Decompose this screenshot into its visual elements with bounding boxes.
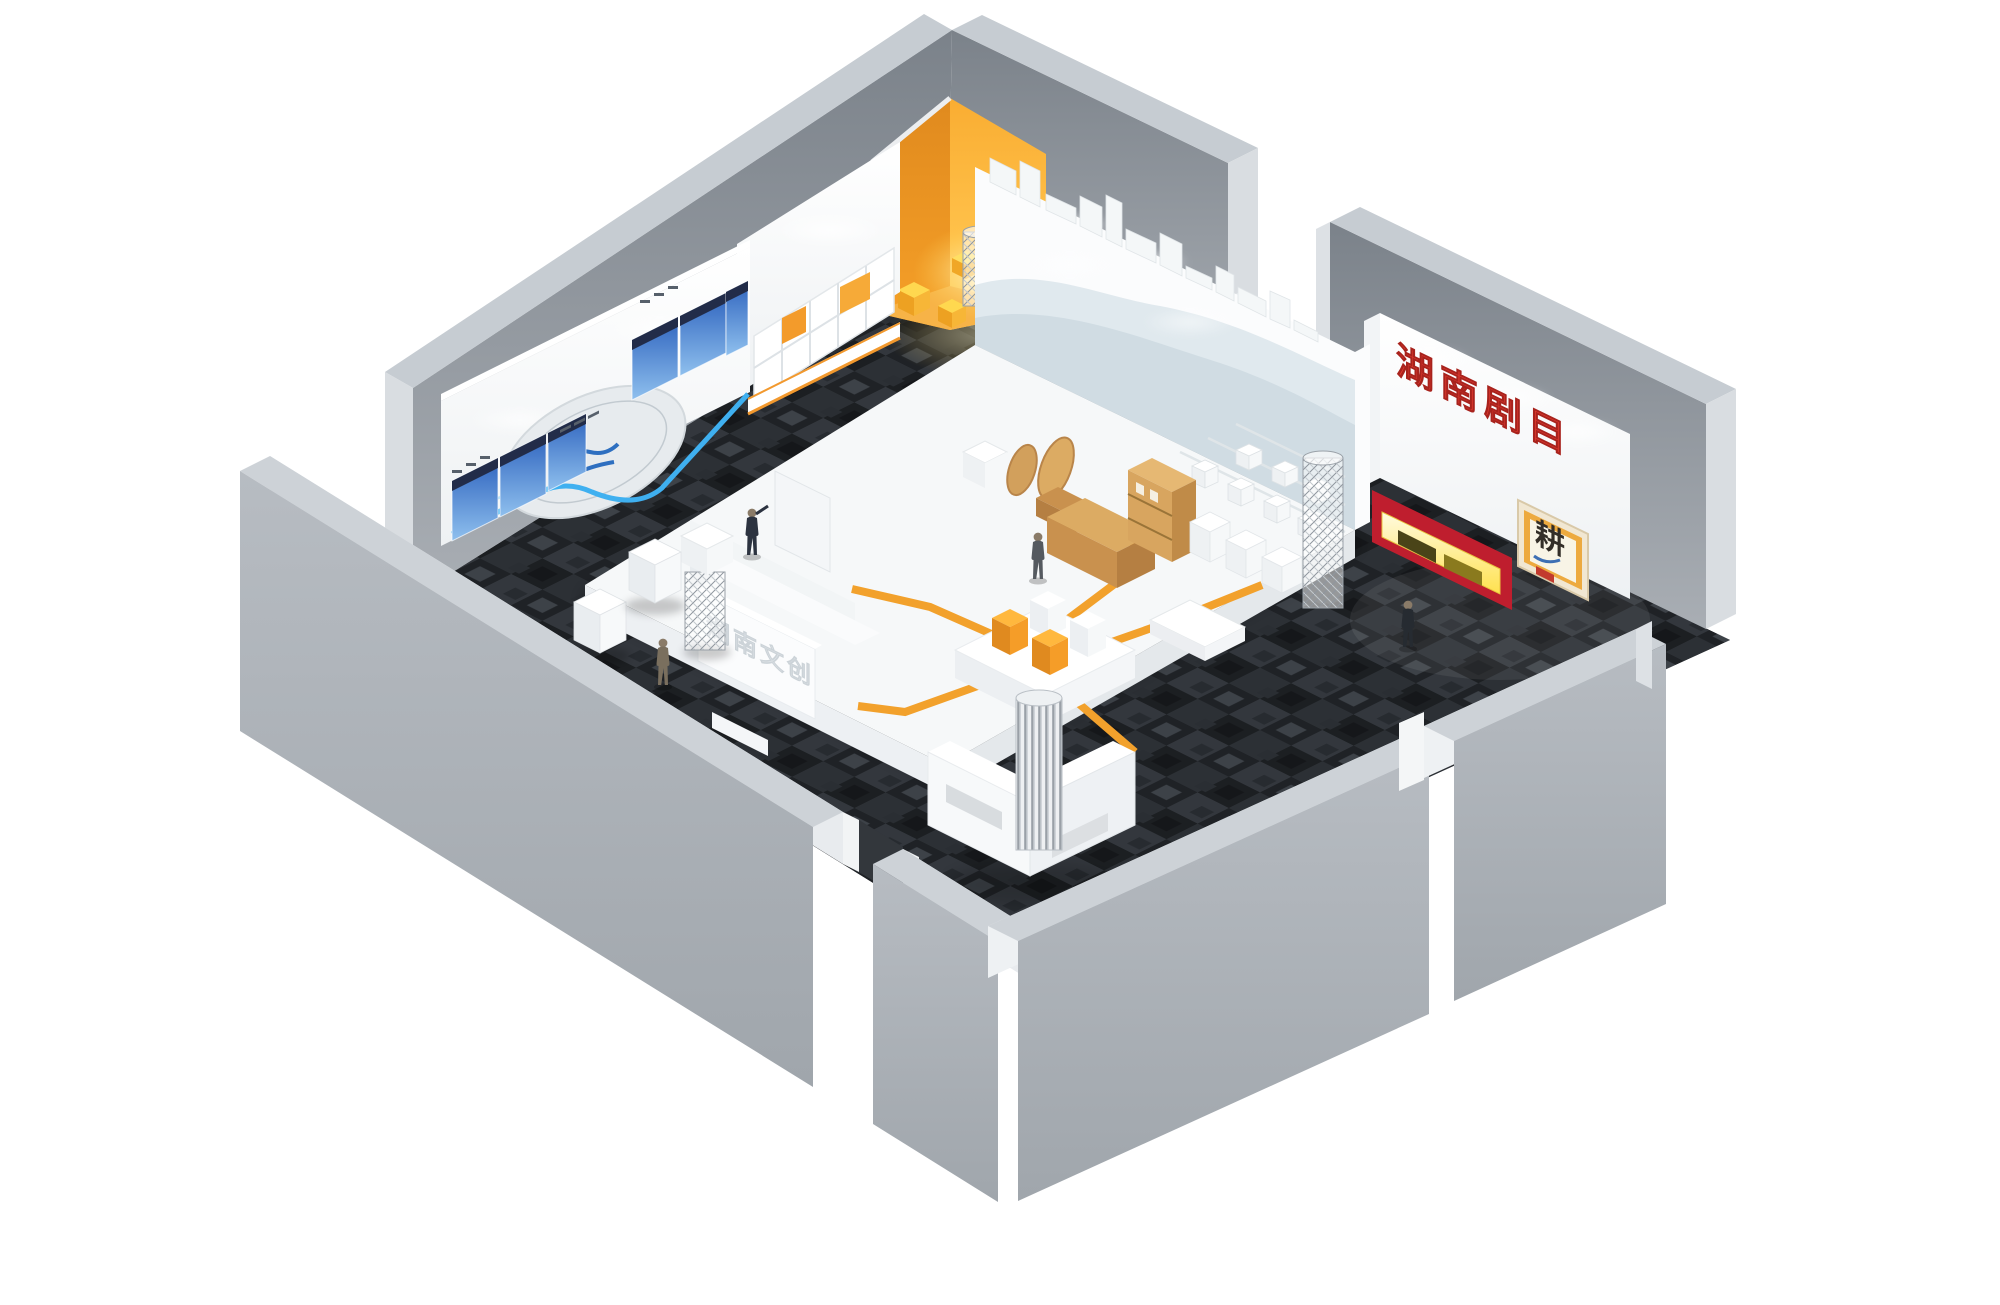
shelf-wall-spotlight [775, 214, 885, 246]
mural-spotlight [1142, 307, 1238, 337]
orange-cube [1032, 629, 1068, 675]
white-cube [1070, 611, 1106, 657]
mural-wall-end-cap [1355, 344, 1370, 530]
lattice-column-west [681, 523, 733, 660]
cube-seat [625, 539, 685, 615]
door-jamb [843, 812, 859, 872]
lattice-column-east [1303, 451, 1343, 608]
mural-spotlight [1022, 250, 1118, 280]
isometric-scene: 湖南文创 湖南剧目 耕 [0, 0, 2000, 1305]
se-wall-jog [1399, 712, 1424, 791]
exhibition-hall-render: 湖南文创 湖南剧目 耕 [0, 0, 2000, 1305]
ribbed-column [1016, 690, 1062, 850]
se-wall-end-cap [1636, 621, 1652, 689]
orange-cube [992, 609, 1028, 655]
ne-wall2-end-cap [1706, 389, 1736, 629]
